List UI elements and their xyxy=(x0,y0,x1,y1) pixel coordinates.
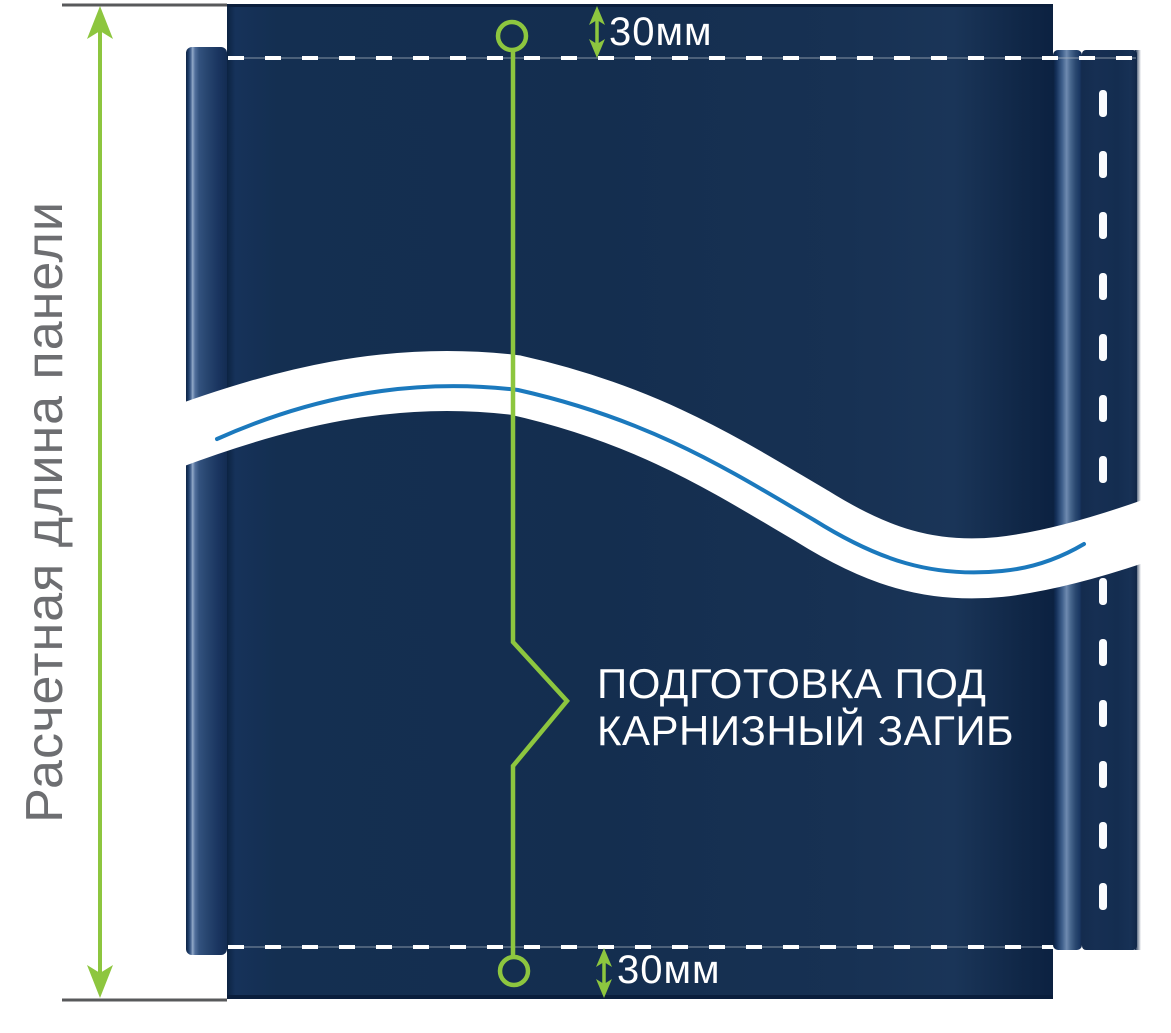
perforation-slot xyxy=(1099,700,1107,727)
annotation-line2: КАРНИЗНЫЙ ЗАГИБ xyxy=(597,707,1014,754)
perforation-slot xyxy=(1099,883,1107,910)
panel-preparation-diagram: Расчетная длина панели 30мм 30мм ПОДГОТО… xyxy=(0,0,1171,1033)
panel xyxy=(186,4,1141,999)
right-nailing-strip xyxy=(1082,50,1137,950)
right-edge-fade xyxy=(1135,50,1141,950)
perforation-slot xyxy=(1099,761,1107,788)
perforation-slot xyxy=(1099,578,1107,605)
perforation-slot xyxy=(1099,639,1107,666)
left-flange xyxy=(186,47,227,955)
perforation-slot xyxy=(1099,273,1107,300)
length-dimension xyxy=(87,6,113,998)
perforation-slot xyxy=(1099,822,1107,849)
panel-length-label: Расчетная длина панели xyxy=(15,201,75,823)
perforation-slot xyxy=(1099,334,1107,361)
perforation-slot xyxy=(1099,151,1107,178)
right-rib xyxy=(1053,50,1082,950)
panel-bottom-edge xyxy=(227,995,1053,999)
annotation-text: ПОДГОТОВКА ПОД КАРНИЗНЫЙ ЗАГИБ xyxy=(597,660,1014,754)
annotation-line1: ПОДГОТОВКА ПОД xyxy=(597,660,1014,707)
perforation-slot xyxy=(1099,456,1107,483)
bottom-offset-label: 30мм xyxy=(617,950,721,990)
perforation-slot xyxy=(1099,212,1107,239)
perforation-slot xyxy=(1099,395,1107,422)
panel-top-edge xyxy=(227,4,1053,7)
top-offset-label: 30мм xyxy=(609,12,713,52)
panel-body xyxy=(227,4,1053,999)
perforation-slot xyxy=(1099,90,1107,117)
panel-diagram-canvas xyxy=(0,0,1171,1033)
